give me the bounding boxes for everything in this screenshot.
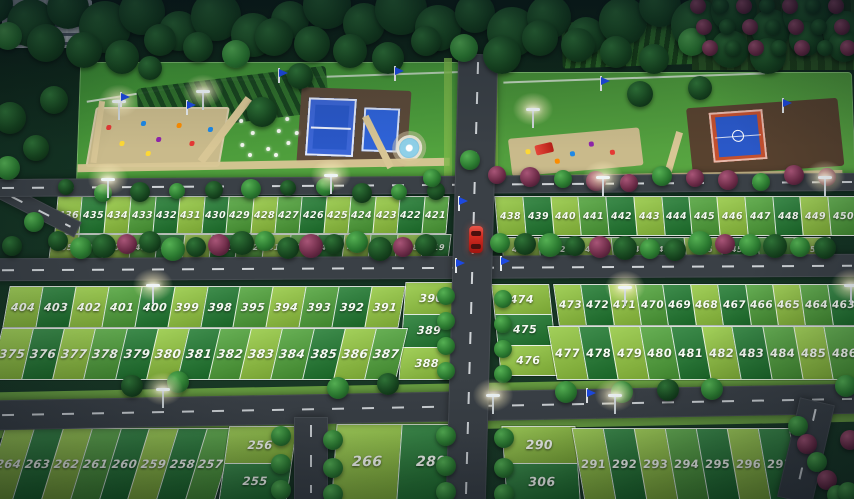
tree — [241, 179, 261, 199]
plot-430: 430 — [201, 197, 229, 233]
plot-432: 432 — [152, 197, 180, 233]
plot-number: 263 — [24, 457, 51, 471]
plot-445: 445 — [689, 197, 720, 235]
plot-431: 431 — [177, 197, 205, 233]
flag-marker — [394, 66, 406, 81]
lamp-pole — [624, 288, 626, 306]
flag-pennant — [501, 257, 510, 265]
plot-number: 375 — [0, 347, 26, 361]
plot-number: 382 — [216, 347, 244, 361]
plot-number: 404 — [10, 301, 35, 314]
plot-427: 427 — [274, 197, 302, 233]
tree — [436, 426, 456, 446]
tree — [657, 379, 679, 401]
plot-441: 441 — [578, 197, 609, 235]
plot-number: 434 — [107, 210, 129, 221]
tree-maroon — [715, 234, 735, 254]
plot-number: 291 — [581, 457, 607, 471]
lamp-head — [596, 176, 610, 179]
plot-number: 261 — [82, 457, 109, 471]
tree — [138, 56, 162, 80]
tree — [437, 362, 455, 380]
lamp-head — [618, 286, 632, 289]
tree — [222, 40, 250, 68]
tree — [494, 484, 514, 499]
road-marking — [2, 398, 852, 416]
tree — [186, 237, 206, 257]
tree — [763, 234, 787, 258]
tree — [247, 97, 277, 127]
tree — [161, 237, 185, 261]
car-rear-window — [471, 244, 481, 249]
tree — [48, 231, 68, 251]
plot-444: 444 — [661, 197, 692, 235]
plot-442: 442 — [605, 197, 636, 235]
plot-423: 423 — [372, 197, 400, 233]
plot-number: 431 — [180, 210, 202, 221]
plot-number: 294 — [674, 457, 700, 471]
tree — [627, 81, 653, 107]
tree — [271, 426, 291, 446]
tree — [436, 482, 456, 499]
street-lamp — [838, 278, 854, 308]
tree — [522, 20, 558, 56]
tree-maroon — [718, 170, 738, 190]
flower-bed-dot — [286, 141, 290, 145]
plot-number: 383 — [247, 347, 275, 361]
tree — [494, 458, 514, 478]
plot-number: 439 — [527, 211, 549, 222]
plot-number: 443 — [638, 211, 660, 222]
plot-number: 444 — [666, 211, 688, 222]
court-net-line — [311, 126, 351, 129]
plot-433: 433 — [128, 197, 156, 233]
plot-number: 427 — [278, 210, 300, 221]
plot-number: 399 — [175, 301, 200, 314]
tree — [565, 236, 585, 256]
flower-bed-dot — [285, 117, 289, 121]
play-equipment — [610, 150, 616, 155]
flag-marker — [500, 256, 512, 271]
tree — [814, 237, 836, 259]
tree — [391, 184, 407, 200]
plot-number: 450 — [833, 211, 854, 222]
plot-number: 425 — [327, 210, 349, 221]
play-equipment — [106, 125, 112, 130]
plot-number: 256 — [247, 438, 273, 452]
plot-number: 388 — [414, 357, 439, 370]
street-lamp — [812, 170, 838, 200]
plot-448: 448 — [772, 197, 803, 235]
tree — [639, 44, 669, 74]
road-horizontal-middle — [0, 254, 854, 282]
plot-number: 426 — [302, 210, 324, 221]
play-equipment — [570, 151, 576, 156]
plot-number: 381 — [185, 347, 213, 361]
tree — [130, 182, 150, 202]
tree — [24, 212, 44, 232]
tree — [719, 19, 735, 35]
plot-number: 469 — [668, 299, 692, 311]
plot-number: 475 — [513, 323, 538, 336]
plot-number: 449 — [805, 211, 827, 222]
tree — [139, 231, 161, 253]
tree — [66, 32, 102, 68]
plot-number: 292 — [612, 457, 638, 471]
plot-429: 429 — [225, 197, 253, 233]
plot-number: 430 — [205, 210, 227, 221]
plot-number: 481 — [677, 346, 703, 360]
flower-bed-dot — [266, 147, 270, 151]
plot-number: 479 — [616, 346, 642, 360]
tree — [2, 236, 22, 256]
tree-maroon — [840, 430, 854, 450]
flag-marker — [278, 68, 290, 83]
plot-number: 467 — [722, 299, 746, 311]
lamp-head — [608, 394, 622, 397]
plot-number: 476 — [516, 354, 541, 367]
plot-number: 438 — [500, 211, 522, 222]
plot-425: 425 — [323, 197, 351, 233]
plot-number: 421 — [425, 210, 447, 221]
plot-number: 483 — [739, 346, 765, 360]
tree — [323, 430, 343, 450]
lamp-pole — [614, 396, 616, 414]
tree — [494, 315, 512, 333]
tree — [494, 290, 512, 308]
sports-pad — [296, 87, 411, 167]
play-equipment — [156, 137, 162, 142]
flower-bed-dot — [248, 153, 252, 157]
lamp-pole — [152, 286, 154, 304]
flag-pennant — [601, 77, 610, 85]
play-equipment — [119, 141, 125, 146]
plot-number: 466 — [750, 299, 774, 311]
flag-marker — [186, 100, 198, 115]
road-marking — [2, 264, 852, 270]
plot-number: 477 — [555, 346, 581, 360]
tree — [561, 28, 595, 62]
tree — [255, 18, 293, 56]
tree-maroon — [788, 19, 804, 35]
tree — [790, 237, 810, 257]
street-lamp — [612, 280, 638, 310]
plot-number: 485 — [800, 346, 826, 360]
flag-marker — [458, 196, 470, 211]
street-lamp — [150, 382, 176, 412]
tree-maroon — [299, 234, 323, 258]
plot-number: 386 — [341, 347, 369, 361]
plot-number: 376 — [29, 347, 57, 361]
plot-number: 389 — [417, 324, 442, 337]
plot-number: 447 — [750, 211, 772, 222]
tree — [70, 237, 92, 259]
tree — [725, 40, 741, 56]
street-lamp — [602, 388, 628, 418]
tree — [324, 234, 344, 254]
tree — [701, 378, 723, 400]
plot-number: 484 — [770, 346, 796, 360]
lamp-head — [486, 394, 500, 397]
lamp-head — [196, 90, 210, 93]
tree — [205, 181, 223, 199]
basketball-court — [709, 109, 768, 163]
plot-number: 423 — [376, 210, 398, 221]
tree-maroon — [520, 167, 540, 187]
tree — [640, 239, 660, 259]
road-vertical-bottom-left — [294, 417, 328, 499]
plot-391: 391 — [365, 287, 405, 327]
tree — [600, 36, 632, 68]
tree — [423, 169, 441, 187]
plot-422: 422 — [397, 197, 425, 233]
plot-number: 480 — [647, 346, 673, 360]
plot-439: 439 — [522, 197, 553, 235]
tree — [838, 482, 854, 499]
plot-426: 426 — [299, 197, 327, 233]
lamp-pole — [492, 396, 494, 414]
tree — [752, 173, 770, 191]
plot-450: 450 — [828, 197, 854, 235]
tree — [368, 237, 392, 261]
plot-number: 392 — [340, 301, 365, 314]
tree-maroon — [794, 40, 810, 56]
lamp-head — [146, 284, 160, 287]
park-left — [76, 62, 460, 190]
play-equipment — [176, 123, 182, 128]
tree — [494, 340, 512, 358]
plot-number: 445 — [694, 211, 716, 222]
play-equipment — [145, 151, 151, 156]
plot-number: 465 — [777, 299, 801, 311]
flag-marker — [120, 92, 132, 107]
plot-number: 464 — [804, 299, 828, 311]
plot-266: 266 — [332, 425, 401, 499]
tree — [788, 416, 808, 436]
lamp-head — [156, 388, 170, 391]
plot-290: 290 — [502, 427, 576, 463]
plot-number: 441 — [583, 211, 605, 222]
plot-number: 435 — [82, 210, 104, 221]
tree — [494, 428, 514, 448]
tree-maroon — [686, 169, 704, 187]
road-marking — [310, 425, 312, 493]
tree — [739, 234, 761, 256]
street-lamp — [140, 278, 166, 308]
tree-maroon — [742, 19, 758, 35]
tree — [255, 231, 275, 251]
plot-block-mid_left_row1: 404403402401400399398395394393392391 — [2, 286, 405, 328]
flag-pennant — [121, 93, 130, 101]
tree — [811, 19, 827, 35]
tree — [415, 234, 437, 256]
lamp-pole — [330, 176, 332, 194]
tree — [144, 24, 176, 56]
grass-verge — [444, 58, 452, 178]
plot-number: 385 — [310, 347, 338, 361]
tree-maroon — [488, 166, 506, 184]
lamp-head — [818, 176, 832, 179]
play-equipment — [189, 141, 195, 146]
tree — [437, 312, 455, 330]
lamp-pole — [162, 390, 164, 408]
flag-pennant — [187, 101, 196, 109]
tree — [771, 40, 787, 56]
plot-421: 421 — [421, 197, 449, 233]
tree — [807, 452, 827, 472]
tree-maroon — [840, 40, 854, 56]
plot-number: 446 — [722, 211, 744, 222]
tree-maroon — [797, 434, 817, 454]
plot-number: 266 — [351, 454, 382, 470]
tree — [450, 34, 478, 62]
lamp-head — [526, 108, 540, 111]
tree — [105, 40, 139, 74]
street-lamp — [95, 172, 121, 202]
tennis-court — [305, 97, 357, 157]
fountain — [396, 135, 423, 161]
plot-number: 482 — [708, 346, 734, 360]
car-windshield — [471, 231, 481, 236]
tree — [280, 180, 296, 196]
plot-number: 306 — [528, 474, 556, 489]
plot-number: 257 — [197, 457, 224, 471]
play-equipment — [525, 149, 531, 154]
plot-number: 402 — [76, 301, 101, 314]
flag-marker — [586, 388, 598, 403]
tree — [490, 233, 510, 253]
flower-bed-dot — [274, 153, 278, 157]
plot-block-mid_right_row1: 473472471470469468467466465464463 — [553, 284, 854, 326]
flag-pennant — [395, 67, 404, 75]
flower-bed-dot — [277, 129, 281, 133]
tree — [271, 454, 291, 474]
plot-440: 440 — [550, 197, 581, 235]
plot-number: 486 — [831, 346, 854, 360]
tree — [688, 76, 712, 100]
plot-number: 380 — [154, 347, 182, 361]
plot-number: 433 — [131, 210, 153, 221]
plot-number: 478 — [585, 346, 611, 360]
lamp-head — [101, 178, 115, 181]
plot-number: 384 — [279, 347, 307, 361]
plot-number: 258 — [168, 457, 195, 471]
plot-number: 428 — [253, 210, 275, 221]
plot-number: 394 — [274, 301, 299, 314]
plot-446: 446 — [716, 197, 747, 235]
play-equipment — [554, 158, 560, 163]
tree — [436, 456, 456, 476]
street-lamp — [480, 388, 506, 418]
street-lamp — [520, 102, 546, 132]
lamp-pole — [602, 178, 604, 196]
plot-number: 395 — [241, 301, 266, 314]
tree — [555, 381, 577, 403]
plot-number: 293 — [643, 457, 669, 471]
tree — [121, 375, 143, 397]
flag-pennant — [783, 99, 792, 107]
plot-block-bottom_right_row: 291292293294295296297 — [572, 428, 803, 499]
plot-number: 442 — [611, 211, 633, 222]
lamp-pole — [824, 178, 826, 196]
tree — [294, 26, 330, 62]
tree — [554, 170, 572, 188]
tree — [411, 26, 441, 56]
aerial-site-plan: 4364354344334324314304294284274264254244… — [0, 0, 854, 499]
plot-number: 379 — [123, 347, 151, 361]
flower-bed-dot — [239, 119, 243, 123]
plot-number: 422 — [400, 210, 422, 221]
plot-435: 435 — [79, 197, 107, 233]
tree — [817, 40, 833, 56]
tree — [92, 234, 116, 258]
tree-maroon — [834, 19, 850, 35]
tree — [688, 231, 712, 255]
plot-number: 468 — [695, 299, 719, 311]
plot-number: 429 — [229, 210, 251, 221]
play-equipment — [207, 127, 213, 132]
lamp-head — [844, 284, 854, 287]
plot-number: 260 — [111, 457, 138, 471]
tree-maroon — [117, 234, 137, 254]
plot-block-mid_right_row2: 477478479480481482483484485486 — [547, 326, 854, 380]
tree — [58, 179, 74, 195]
tree — [327, 377, 349, 399]
flag-pennant — [279, 69, 288, 77]
tree — [333, 34, 367, 68]
tree — [230, 231, 254, 255]
tree — [323, 484, 343, 499]
tree-maroon — [784, 165, 804, 185]
tree-maroon — [393, 237, 413, 257]
plot-number: 474 — [509, 293, 534, 306]
plot-306: 306 — [505, 463, 580, 499]
plot-number: 424 — [351, 210, 373, 221]
plot-number: 264 — [0, 457, 23, 471]
flower-bed-dot — [240, 143, 244, 147]
tree — [271, 480, 291, 499]
tree — [352, 183, 372, 203]
plot-434: 434 — [103, 197, 131, 233]
flag-pennant — [456, 259, 465, 267]
tree — [27, 24, 65, 62]
street-lamp — [318, 168, 344, 198]
tree — [183, 32, 213, 62]
flower-bed-dot — [251, 131, 255, 135]
tree — [664, 239, 686, 261]
flag-marker — [782, 98, 794, 113]
plot-number: 377 — [60, 347, 88, 361]
play-equipment — [589, 141, 595, 146]
flag-pennant — [587, 389, 596, 397]
tree — [277, 237, 299, 259]
tree — [460, 150, 480, 170]
tree — [377, 373, 399, 395]
tree — [652, 166, 672, 186]
lamp-pole — [850, 286, 852, 304]
plot-number: 296 — [736, 457, 762, 471]
plot-number: 403 — [43, 301, 68, 314]
plot-number: 387 — [372, 347, 400, 361]
tree — [437, 287, 455, 305]
lamp-head — [324, 174, 338, 177]
tree — [437, 337, 455, 355]
road-marking — [465, 62, 479, 496]
red-car — [469, 226, 483, 253]
plot-block-mid_left_row2: 375376377378379380381382383384385386387 — [0, 328, 408, 380]
play-equipment — [141, 121, 147, 126]
tree — [323, 458, 343, 478]
